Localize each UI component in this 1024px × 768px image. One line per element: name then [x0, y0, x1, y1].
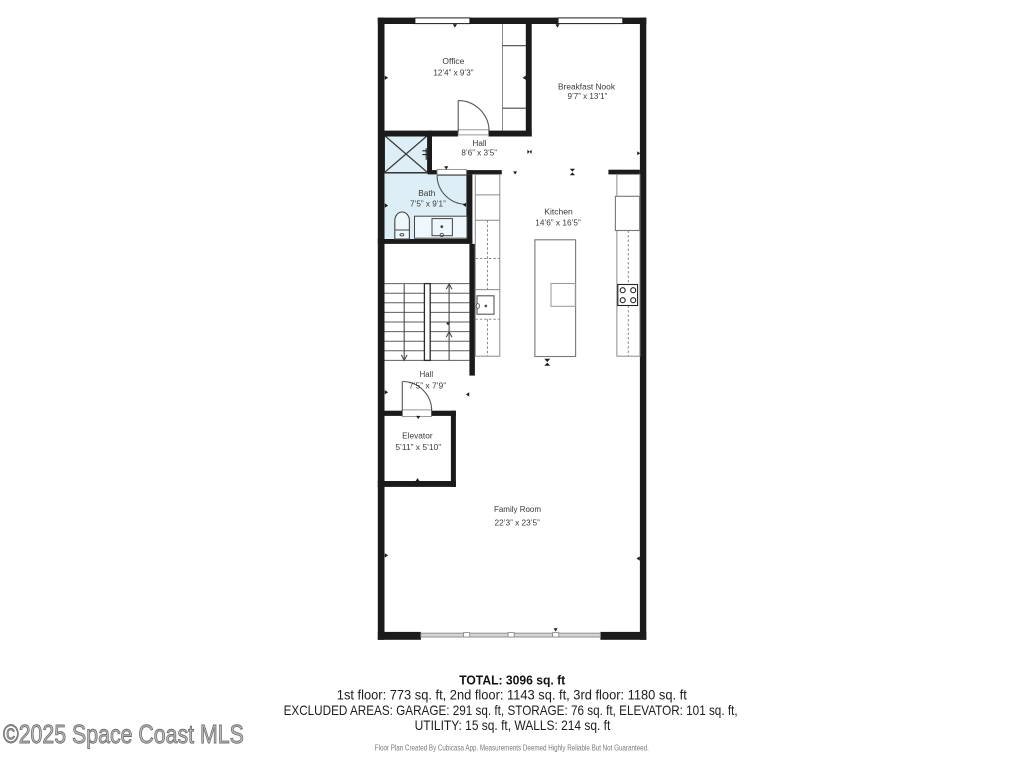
svg-text:7’5” x 9’1”: 7’5” x 9’1”: [410, 199, 446, 208]
svg-text:©2025 Space Coast MLS: ©2025 Space Coast MLS: [3, 719, 244, 749]
svg-text:Kitchen: Kitchen: [544, 206, 573, 216]
svg-text:22’3” x 23’5”: 22’3” x 23’5”: [495, 519, 541, 528]
svg-text:Elevator: Elevator: [402, 431, 433, 441]
svg-text:12’4” x 9’3”: 12’4” x 9’3”: [433, 69, 474, 78]
svg-text:EXCLUDED AREAS: GARAGE: 291 sq: EXCLUDED AREAS: GARAGE: 291 sq. ft, STOR…: [284, 703, 738, 718]
svg-text:Family Room: Family Room: [494, 504, 541, 514]
svg-text:9’7” x 13’1”: 9’7” x 13’1”: [568, 92, 608, 101]
svg-text:Bath: Bath: [418, 188, 435, 198]
svg-text:1st floor: 773 sq. ft, 2nd flo: 1st floor: 773 sq. ft, 2nd floor: 1143 s…: [337, 688, 687, 703]
svg-text:UTILITY: 15 sq. ft, WALLS: 214: UTILITY: 15 sq. ft, WALLS: 214 sq. ft: [415, 718, 611, 733]
svg-text:14’6” x 16’5”: 14’6” x 16’5”: [535, 218, 581, 227]
svg-text:Office: Office: [442, 56, 464, 66]
svg-text:Hall: Hall: [420, 369, 434, 379]
svg-text:7’5” x 7’9”: 7’5” x 7’9”: [409, 381, 447, 390]
svg-text:Hall: Hall: [473, 138, 487, 148]
svg-text:TOTAL: 3096 sq. ft: TOTAL: 3096 sq. ft: [459, 672, 566, 687]
svg-text:Floor Plan Created By Cubicasa: Floor Plan Created By Cubicasa App. Meas…: [375, 744, 649, 753]
svg-text:Breakfast Nook: Breakfast Nook: [558, 82, 616, 92]
svg-text:5’11” x 5’10”: 5’11” x 5’10”: [395, 443, 441, 452]
svg-text:8’6” x 3’5”: 8’6” x 3’5”: [461, 149, 497, 158]
